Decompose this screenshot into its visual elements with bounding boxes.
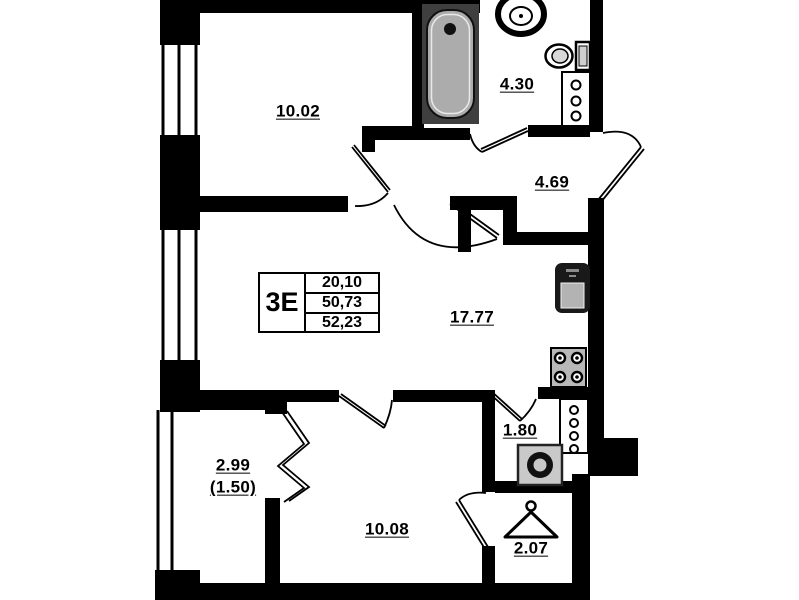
kitchen-sink [555, 263, 590, 313]
towel-riser [562, 72, 590, 126]
window-living [163, 228, 196, 362]
window-balcony [158, 410, 172, 572]
door-balcony-french [278, 411, 309, 502]
wash-basin [498, 0, 544, 34]
room-area-label-balcony-reduced: (1.50) [210, 479, 256, 498]
unit-area-row-1: 20,10 [306, 274, 378, 294]
room-area-label-balcony: 2.99 [216, 457, 250, 476]
toilet [546, 42, 591, 70]
floorplan-canvas [0, 0, 799, 600]
room-area-label-corridor: 1.80 [503, 422, 537, 441]
stove [551, 348, 586, 387]
room-area-label-wardrobe: 2.07 [514, 540, 548, 559]
room-area-label-bedroom-bottom: 10.08 [365, 521, 409, 540]
unit-info-table: 3Е 20,10 50,73 52,23 [258, 272, 380, 333]
door-corridor [489, 391, 536, 421]
door-wardrobe [456, 493, 488, 549]
door-entrance [598, 132, 644, 202]
unit-area-row-3: 52,23 [306, 314, 378, 332]
room-area-label-hall: 4.69 [535, 174, 569, 193]
room-area-label-living-kitchen: 17.77 [450, 309, 494, 328]
door-bathroom [470, 128, 528, 152]
hanger-icon [505, 502, 557, 538]
washing-machine [518, 445, 562, 485]
door-bedroom-bottom [339, 394, 392, 428]
room-area-label-bathroom: 4.30 [500, 76, 534, 95]
floorplan-page: 10.02 4.30 4.69 17.77 1.80 2.99 (1.50) 1… [0, 0, 799, 600]
bathtub [422, 4, 479, 124]
door-bedroom-top [352, 145, 390, 206]
room-area-label-bedroom-top: 10.02 [276, 103, 320, 122]
unit-area-rows: 20,10 50,73 52,23 [306, 274, 378, 331]
unit-type-cell: 3Е [260, 274, 306, 331]
window-bedroom-top [163, 45, 196, 135]
utility-riser [560, 399, 588, 453]
unit-area-row-2: 50,73 [306, 294, 378, 314]
windows [158, 45, 196, 572]
